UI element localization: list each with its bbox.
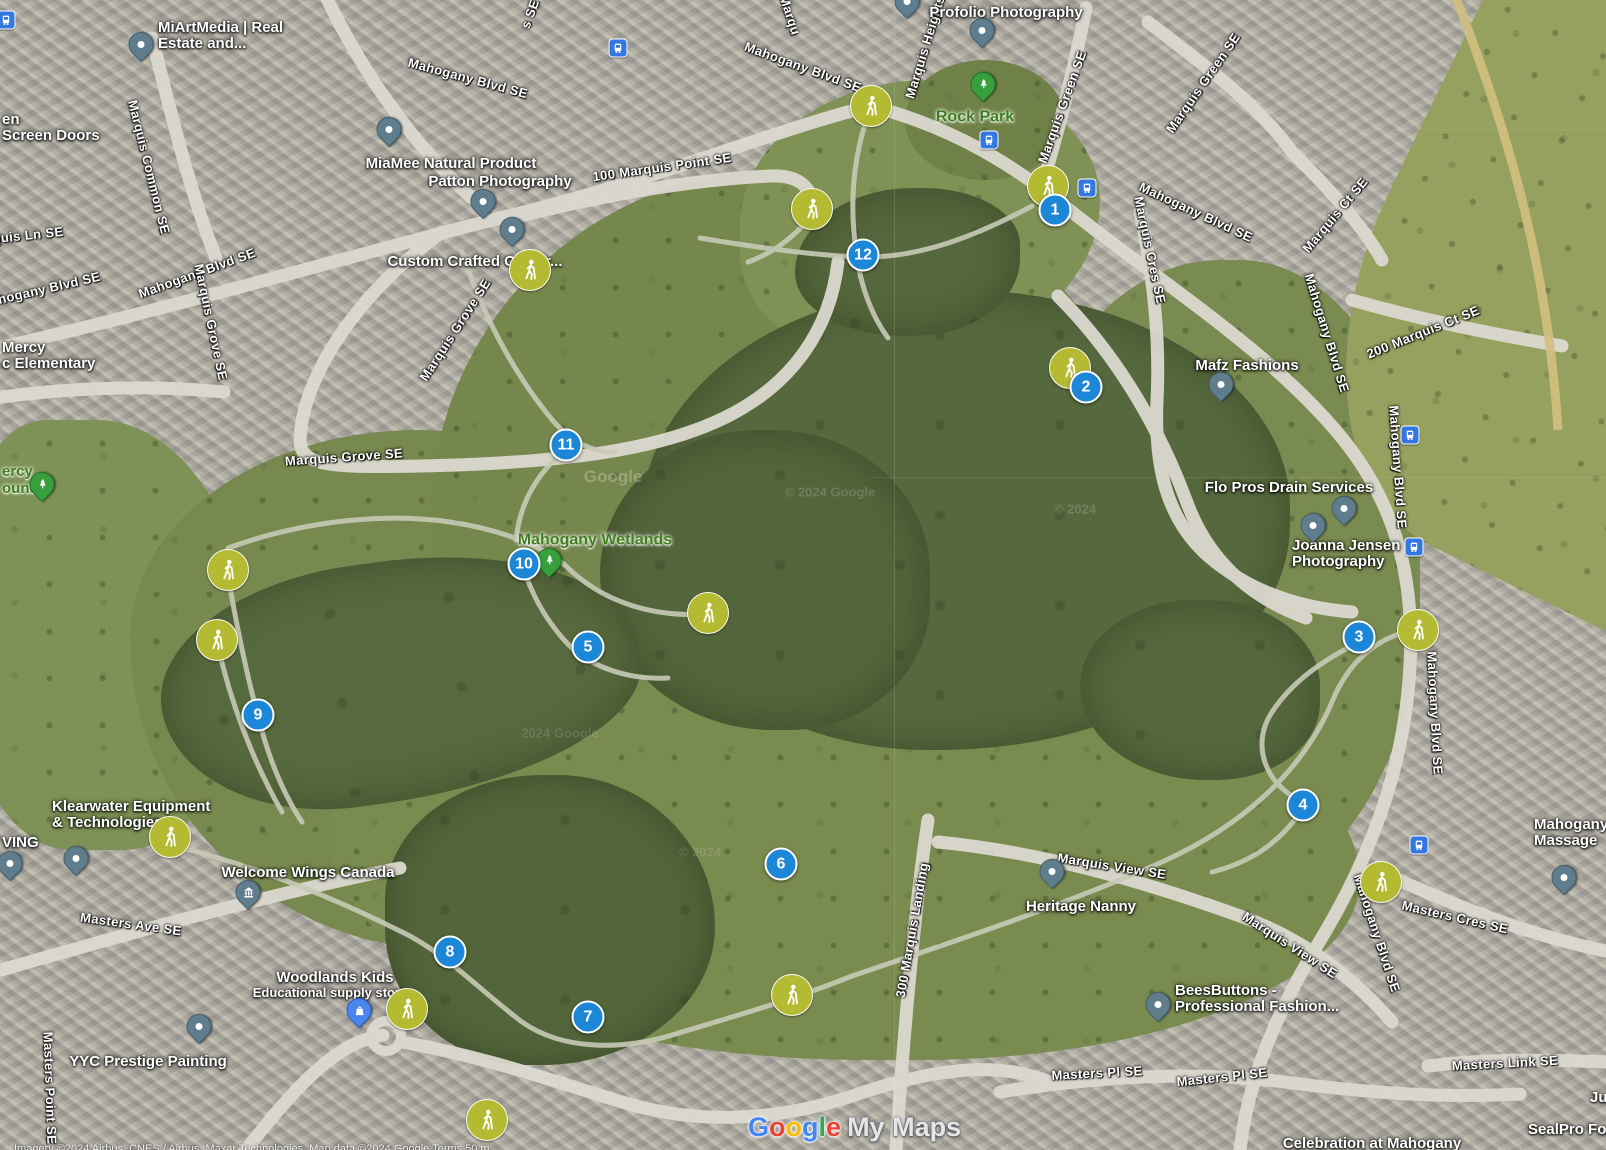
map-marker-4[interactable]: 4	[1287, 789, 1320, 822]
street-label: Mahogany Blvd SE	[742, 39, 863, 95]
map-marker-6[interactable]: 6	[765, 848, 798, 881]
poi-pin[interactable]	[371, 112, 406, 147]
street-label: Marquis Grove SE	[416, 276, 493, 383]
street-label: Masters Point SE	[41, 1031, 60, 1144]
pin-dot	[1308, 521, 1318, 531]
pin-dot	[1559, 873, 1569, 883]
ghost-watermark: © 2024	[1054, 502, 1096, 517]
business-label: Mafz Fashions	[1195, 358, 1298, 374]
bus-stop-icon[interactable]	[1410, 836, 1429, 855]
business-label: Mercyc Elementary	[2, 340, 95, 372]
business-label: MahoganyMassage	[1534, 817, 1606, 849]
business-label: MiArtMedia | RealEstate and...	[158, 20, 283, 52]
bus-stop-icon[interactable]	[0, 11, 16, 30]
pin-dot	[5, 859, 15, 869]
business-label: VING	[2, 835, 39, 851]
street-label: Marquis Ct SE	[1299, 174, 1370, 255]
trailhead-hiker-icon[interactable]	[196, 619, 238, 661]
poi-pin[interactable]	[889, 0, 924, 19]
street-label: Marquis Common SE	[125, 98, 173, 235]
street-label: Marquis Green SE	[1035, 49, 1090, 165]
street-label: Masters Ave SE	[79, 909, 182, 938]
pin-dot	[194, 1022, 204, 1032]
google-my-maps-watermark: GoogleMy Maps	[748, 1112, 961, 1143]
google-logo-letter: g	[802, 1112, 819, 1142]
map-marker-8[interactable]: 8	[434, 936, 467, 969]
google-logo-letter: e	[826, 1112, 841, 1142]
street-label: 200 Marquis Ct SE	[1364, 303, 1481, 362]
bus-stop-icon[interactable]	[609, 39, 628, 58]
business-label: BeesButtons -Professional Fashion...	[1175, 983, 1339, 1015]
ghost-watermark: © 2024 Google	[785, 485, 876, 500]
map-marker-1[interactable]: 1	[1039, 194, 1072, 227]
street-label: Marquis Green SE	[1163, 30, 1243, 136]
trailhead-hiker-icon[interactable]	[1397, 609, 1439, 651]
map-marker-9[interactable]: 9	[242, 699, 275, 732]
street-label: Mahogany Blvd SE	[1386, 405, 1410, 529]
business-label: YYC Prestige Painting	[69, 1054, 227, 1070]
pin-dot	[507, 225, 517, 235]
poi-pin[interactable]	[181, 1009, 216, 1044]
bus-stop-icon[interactable]	[980, 131, 999, 150]
business-label: Profolio Photography	[929, 5, 1082, 21]
business-label: enScreen Doors	[2, 112, 100, 144]
trailhead-hiker-icon[interactable]	[687, 592, 729, 634]
poi-pin[interactable]	[1034, 854, 1069, 889]
trailhead-hiker-icon[interactable]	[850, 85, 892, 127]
street-label: Marquis View SE	[1057, 850, 1168, 882]
poi-pin[interactable]	[1326, 491, 1361, 526]
trailhead-hiker-icon[interactable]	[207, 549, 249, 591]
poi-pin[interactable]	[494, 212, 529, 247]
street-label: Marquis Grove SE	[191, 263, 230, 382]
street-label: s SE	[518, 0, 542, 31]
street-label: Masters Link SE	[1451, 1053, 1558, 1074]
street-label: Mahogany Blvd SE	[0, 269, 102, 311]
bus-stop-icon[interactable]	[1078, 179, 1097, 198]
business-label: Woodlands Kids	[276, 970, 393, 986]
street-label: 300 Marquis Landing	[893, 861, 932, 998]
my-maps-label: My Maps	[847, 1112, 961, 1142]
map-marker-5[interactable]: 5	[572, 631, 605, 664]
pin-dot	[384, 125, 394, 135]
map-marker-12[interactable]: 12	[847, 239, 880, 272]
map-marker-3[interactable]: 3	[1343, 621, 1376, 654]
trailhead-hiker-icon[interactable]	[509, 249, 551, 291]
google-logo-letter: l	[819, 1112, 827, 1142]
business-label: Patton Photography	[428, 174, 571, 190]
trailhead-hiker-icon[interactable]	[791, 188, 833, 230]
map-attribution: Imagery ©2024 Airbus, CNES / Airbus, Max…	[14, 1143, 1414, 1150]
map-overlay: Mahogany Blvd SEMahogany Blvd SEMahogany…	[0, 0, 1606, 1150]
ghost-watermark: Google	[584, 467, 643, 487]
poi-pin[interactable]	[0, 846, 28, 881]
trailhead-hiker-icon[interactable]	[466, 1099, 508, 1141]
poi-pin[interactable]	[58, 841, 93, 876]
street-label: Marquis Cres SE	[1131, 195, 1168, 305]
google-logo-letter: G	[748, 1112, 769, 1142]
street-label: Mahogany Blvd SE	[406, 55, 529, 101]
street-label: Masters Cres SE	[1400, 897, 1509, 936]
map-marker-7[interactable]: 7	[572, 1001, 605, 1034]
poi-pin[interactable]	[1140, 987, 1175, 1022]
map-marker-10[interactable]: 10	[508, 548, 541, 581]
street-label: Marquis Grove SE	[284, 445, 403, 468]
my-maps-satellite-canvas[interactable]: Mahogany Blvd SEMahogany Blvd SEMahogany…	[0, 0, 1606, 1150]
bus-stop-icon[interactable]	[1401, 426, 1420, 445]
pin-dot	[902, 0, 912, 6]
business-label: MiaMee Natural Product	[366, 156, 537, 172]
street-label: Mahogany Blvd SE	[136, 245, 257, 301]
street-label: quis Ln SE	[0, 224, 64, 246]
google-logo-letter: o	[786, 1112, 803, 1142]
street-label: Mahogany Blvd SE	[1302, 272, 1352, 394]
business-label: Ju	[1590, 1090, 1606, 1106]
trailhead-hiker-icon[interactable]	[386, 988, 428, 1030]
pin-dot	[1339, 504, 1349, 514]
bus-stop-icon[interactable]	[1405, 538, 1424, 557]
trailhead-hiker-icon[interactable]	[771, 974, 813, 1016]
street-label: Marqu	[777, 0, 804, 37]
pin-dot	[71, 854, 81, 864]
poi-pin[interactable]	[1546, 860, 1581, 895]
pin-dot	[1047, 867, 1057, 877]
ghost-watermark: 2024 Google	[521, 726, 598, 741]
park-tree-pin[interactable]	[965, 67, 1000, 102]
map-marker-2[interactable]: 2	[1070, 371, 1103, 404]
street-label: Masters Pl SE	[1051, 1063, 1143, 1083]
poi-pin[interactable]	[123, 27, 158, 62]
street-label: Marquis View SE	[1240, 909, 1340, 981]
business-label: Joanna JensenPhotography	[1292, 538, 1400, 570]
park-label: Rock Park	[936, 109, 1014, 126]
business-label: Educational supply store	[253, 985, 408, 1001]
trailhead-hiker-icon[interactable]	[149, 816, 191, 858]
google-logo[interactable]: Google	[748, 1112, 841, 1142]
map-marker-11[interactable]: 11	[550, 429, 583, 462]
business-label: Heritage Nanny	[1026, 899, 1136, 915]
business-label: Flo Pros Drain Services	[1205, 480, 1373, 496]
street-label: Mahogany Blvd SE	[1137, 179, 1255, 245]
street-label: 100 Marquis Point SE	[592, 150, 733, 184]
ghost-watermark: © 2024	[679, 845, 721, 860]
pin-dot	[478, 197, 488, 207]
pin-dot	[136, 40, 146, 50]
pin-dot	[1216, 380, 1226, 390]
pin-dot	[977, 26, 987, 36]
street-label: Mahogany Blvd SE	[1424, 651, 1445, 775]
business-label: SealPro Foa	[1528, 1122, 1606, 1138]
street-label: Masters Pl SE	[1176, 1065, 1268, 1089]
trailhead-hiker-icon[interactable]	[1360, 861, 1402, 903]
pin-dot	[1153, 1000, 1163, 1010]
google-logo-letter: o	[769, 1112, 786, 1142]
park-label: Mahogany Wetlands	[518, 532, 672, 549]
